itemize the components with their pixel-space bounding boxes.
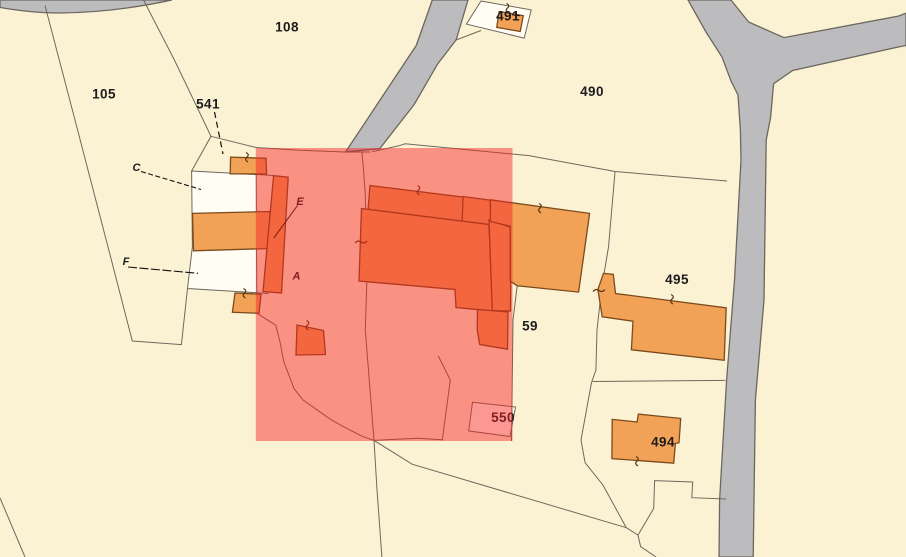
svg-text:108: 108 (275, 20, 299, 35)
svg-text:494: 494 (651, 435, 675, 450)
svg-text:C: C (133, 162, 142, 174)
svg-text:541: 541 (196, 97, 220, 112)
svg-text:59: 59 (522, 319, 538, 334)
svg-text:105: 105 (92, 87, 116, 102)
svg-text:490: 490 (580, 84, 604, 99)
svg-text:491: 491 (496, 9, 520, 24)
svg-text:F: F (123, 256, 130, 268)
svg-text:495: 495 (665, 272, 689, 287)
